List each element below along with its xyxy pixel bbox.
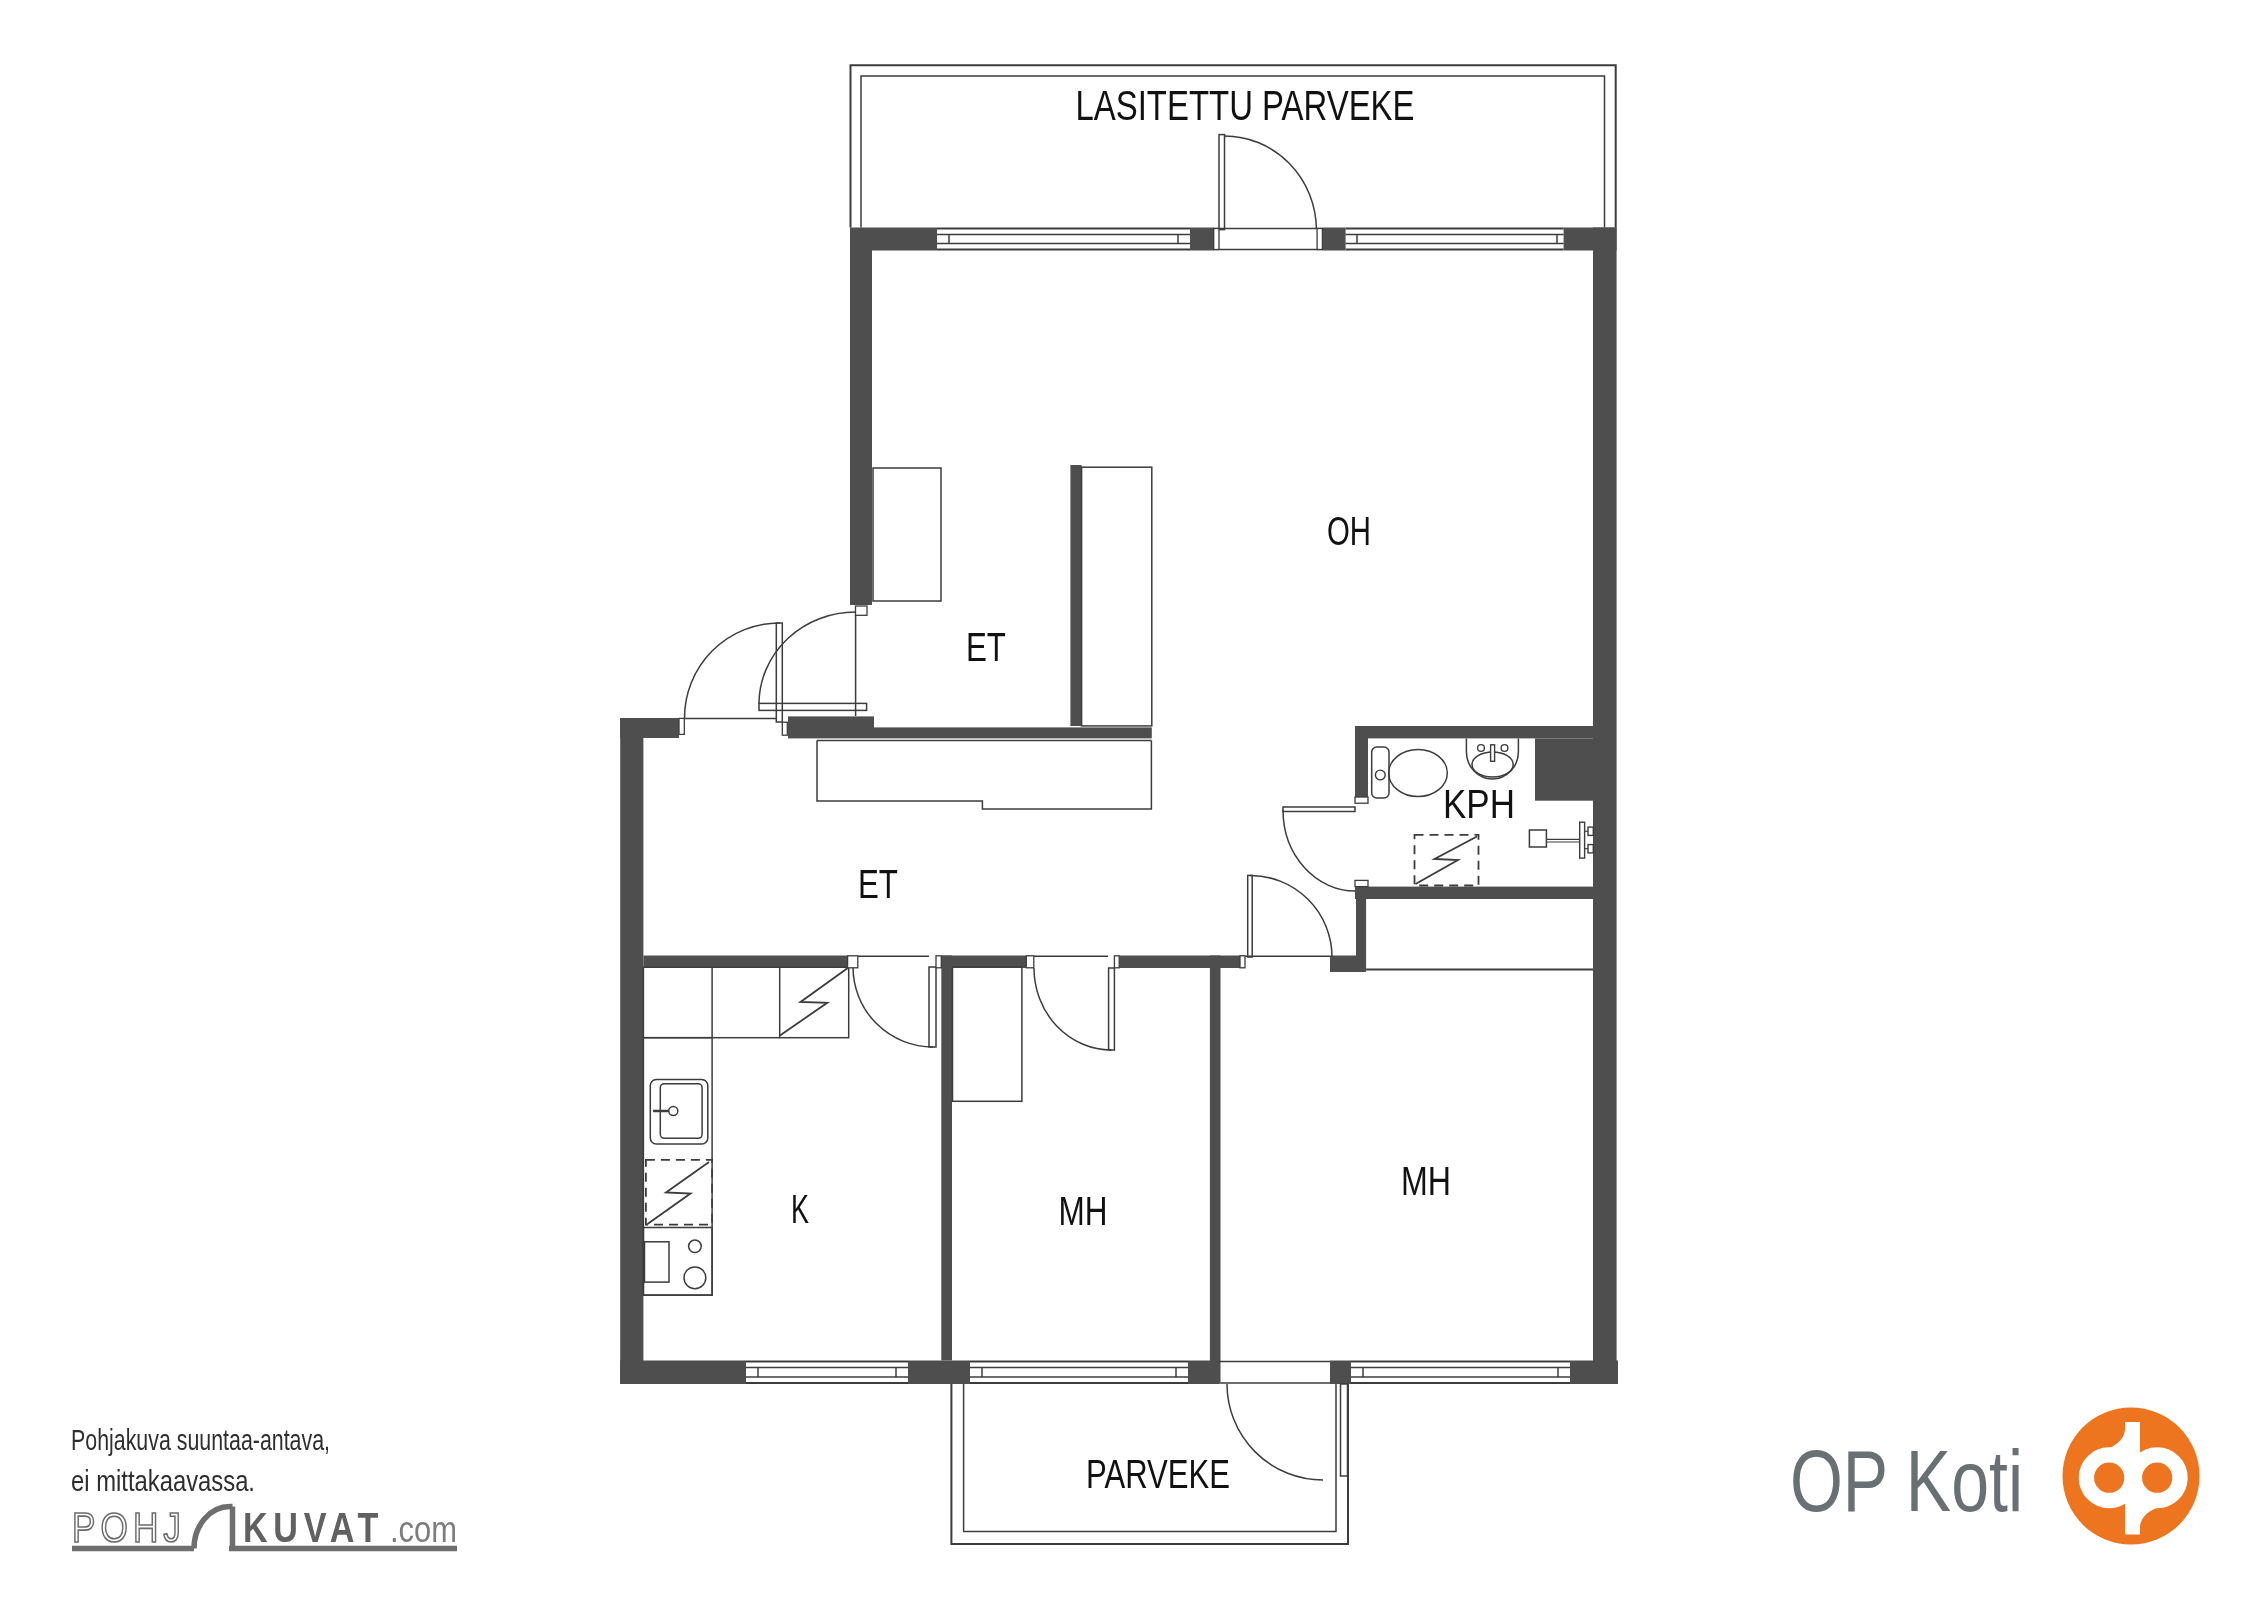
svg-text:K: K xyxy=(791,1187,809,1231)
svg-text:LASITETTU PARVEKE: LASITETTU PARVEKE xyxy=(1076,81,1415,129)
svg-text:ET: ET xyxy=(966,625,1006,669)
svg-text:.com: .com xyxy=(390,1509,457,1550)
svg-text:OP Koti: OP Koti xyxy=(1790,1431,2023,1530)
svg-text:KUVAT: KUVAT xyxy=(243,1504,384,1551)
svg-text:PARVEKE: PARVEKE xyxy=(1086,1452,1230,1496)
svg-text:MH: MH xyxy=(1059,1189,1108,1233)
svg-text:Pohjakuva suuntaa-antava,: Pohjakuva suuntaa-antava, xyxy=(71,1423,330,1456)
svg-text:OH: OH xyxy=(1327,509,1371,553)
svg-text:POHJ: POHJ xyxy=(72,1504,186,1551)
svg-text:MH: MH xyxy=(1401,1159,1451,1203)
svg-text:ET: ET xyxy=(858,862,898,906)
svg-text:KPH: KPH xyxy=(1443,782,1515,826)
svg-text:ei mittakaavassa.: ei mittakaavassa. xyxy=(71,1464,255,1497)
